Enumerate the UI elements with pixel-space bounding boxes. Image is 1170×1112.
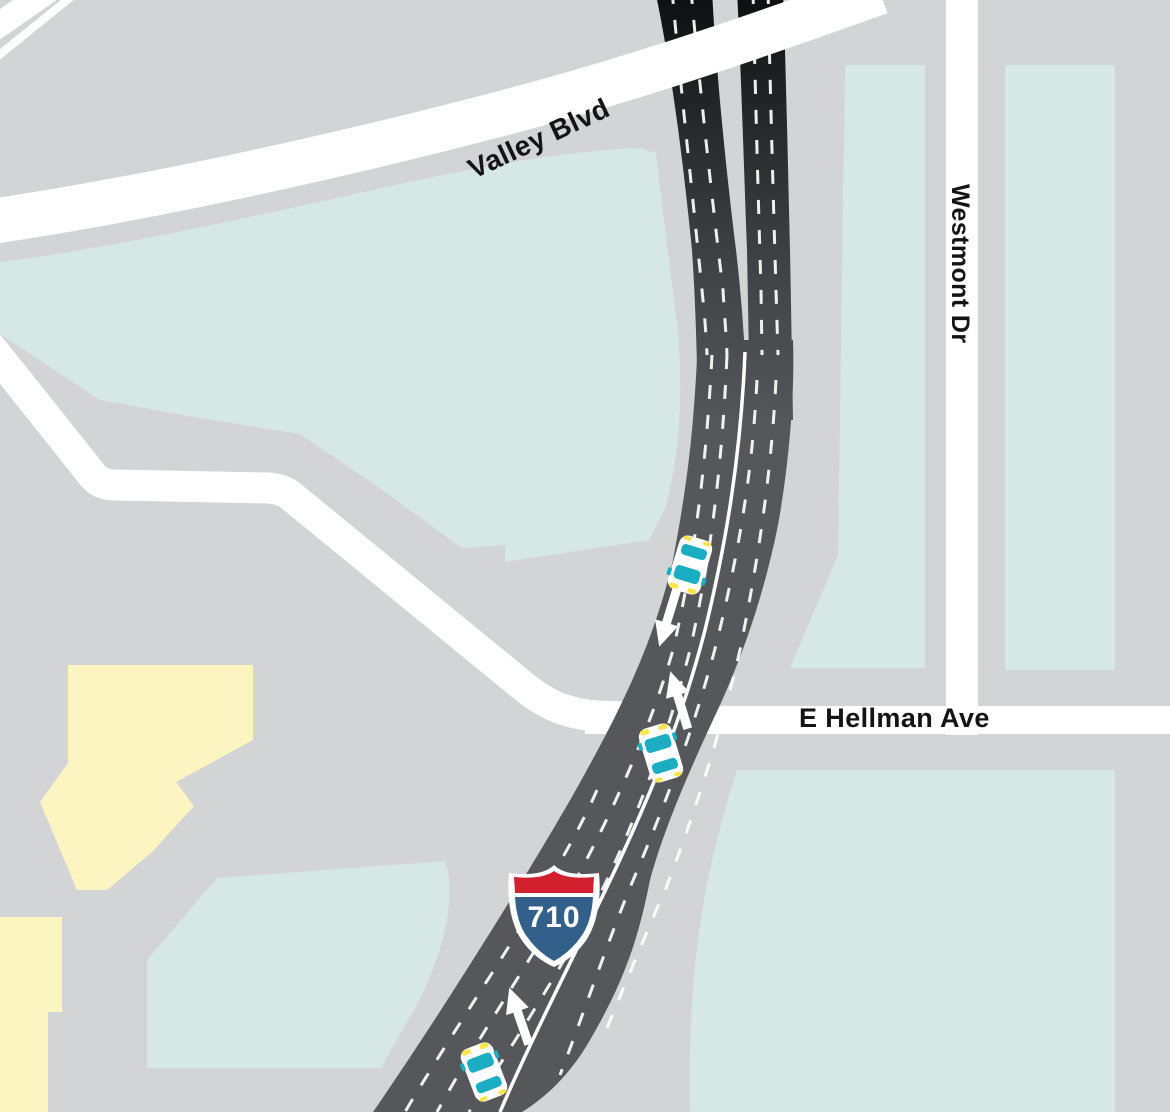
parcel-southeast bbox=[690, 770, 1115, 1112]
westmont-dr-road bbox=[946, 0, 978, 735]
parcel-westmont-right bbox=[1005, 65, 1115, 670]
map-root: Valley Blvd Westmont Dr E Hellman Ave 71… bbox=[0, 0, 1170, 1112]
street-label-westmont-dr: Westmont Dr bbox=[945, 184, 974, 344]
shield-route-number: 710 bbox=[504, 901, 604, 935]
street-label-hellman-ave: E Hellman Ave bbox=[799, 703, 990, 734]
map-canvas bbox=[0, 0, 1170, 1112]
